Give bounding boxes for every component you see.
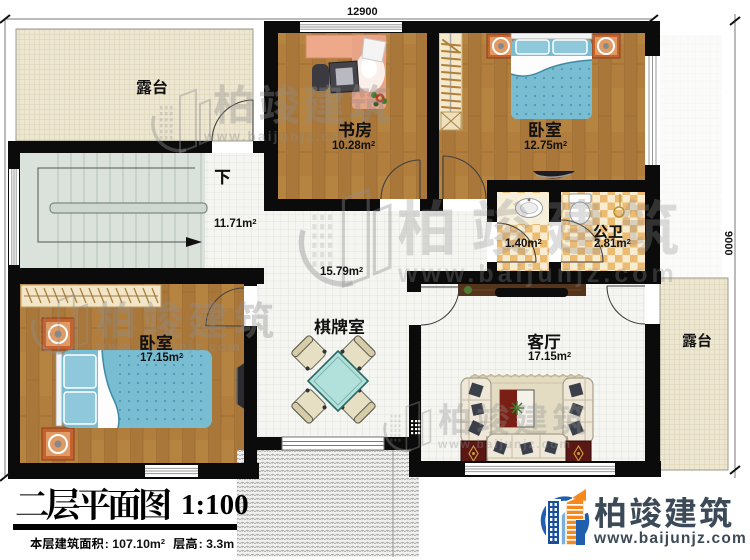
svg-text:www.baijunjz.com: www.baijunjz.com [437,437,572,451]
svg-text:1:100: 1:100 [181,489,249,521]
svg-text:9000: 9000 [722,231,734,255]
svg-text:17.15m2: 17.15m2 [140,351,183,364]
svg-text:: 107.10m2: : 107.10m2 [105,537,165,551]
svg-text:2.81m2: 2.81m2 [594,237,631,250]
svg-text:www.baijunjz.com: www.baijunjz.com [593,530,747,547]
svg-text:: 3.3m: : 3.3m [199,537,235,551]
svg-text:15.79m2: 15.79m2 [320,265,363,278]
svg-text:1.40m2: 1.40m2 [505,237,542,250]
svg-text:12.75m2: 12.75m2 [524,139,567,152]
svg-text:11.71m2: 11.71m2 [214,217,257,230]
svg-text:12900: 12900 [347,6,378,18]
svg-text:17.15m2: 17.15m2 [528,350,571,363]
svg-text:www.baijunjz.com: www.baijunjz.com [397,260,678,288]
svg-text:10.28m2: 10.28m2 [332,139,375,152]
